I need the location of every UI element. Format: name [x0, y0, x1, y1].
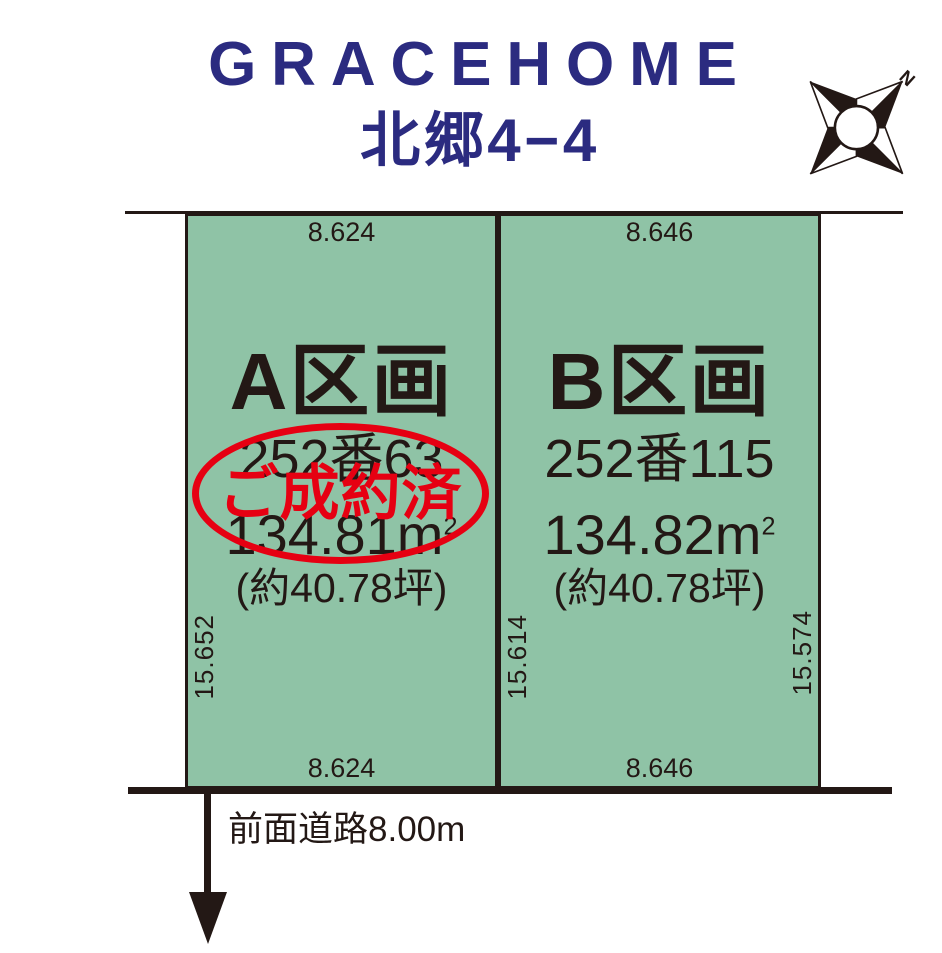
plot-a-area-tsubo: (約40.78坪)	[188, 568, 495, 609]
plot-b-width-top: 8.646	[501, 218, 818, 248]
plot-a: 8.624 A区画 252番63 134.81m2 (約40.78坪) 15.6…	[185, 213, 498, 789]
plot-a-width-top: 8.624	[188, 218, 495, 248]
plot-b-width-bottom: 8.646	[501, 754, 818, 784]
sold-stamp: ご成約済	[192, 423, 489, 564]
compass-north-icon: N	[800, 64, 918, 182]
plot-b-lot-number: 252番115	[501, 432, 818, 486]
plot-b-area: 134.82m2	[501, 507, 818, 563]
plot-a-width-bottom: 8.624	[188, 754, 495, 784]
road-direction-arrowhead-icon	[189, 892, 227, 944]
road-direction-arrow	[204, 790, 211, 894]
location-subtitle: 北郷4−4	[120, 108, 840, 174]
plot-b-depth-right: 15.574	[789, 610, 815, 696]
front-road-label: 前面道路8.00m	[228, 801, 465, 852]
plot-a-title: A区画	[188, 342, 495, 422]
plot-a-depth-left: 15.652	[191, 614, 217, 700]
plot-b-area-tsubo: (約40.78坪)	[501, 568, 818, 609]
sold-stamp-text: ご成約済	[219, 464, 463, 524]
plot-b: 8.646 B区画 252番115 134.82m2 (約40.78坪) 15.…	[498, 213, 821, 789]
plot-b-depth-left: 15.614	[504, 614, 530, 700]
brand-title: GRACEHOME	[120, 34, 840, 96]
site-plan-flyer: GRACEHOME 北郷4−4 N 前面道路8.00m 8.624 A区画 25…	[0, 0, 942, 953]
plot-b-title: B区画	[501, 342, 818, 422]
